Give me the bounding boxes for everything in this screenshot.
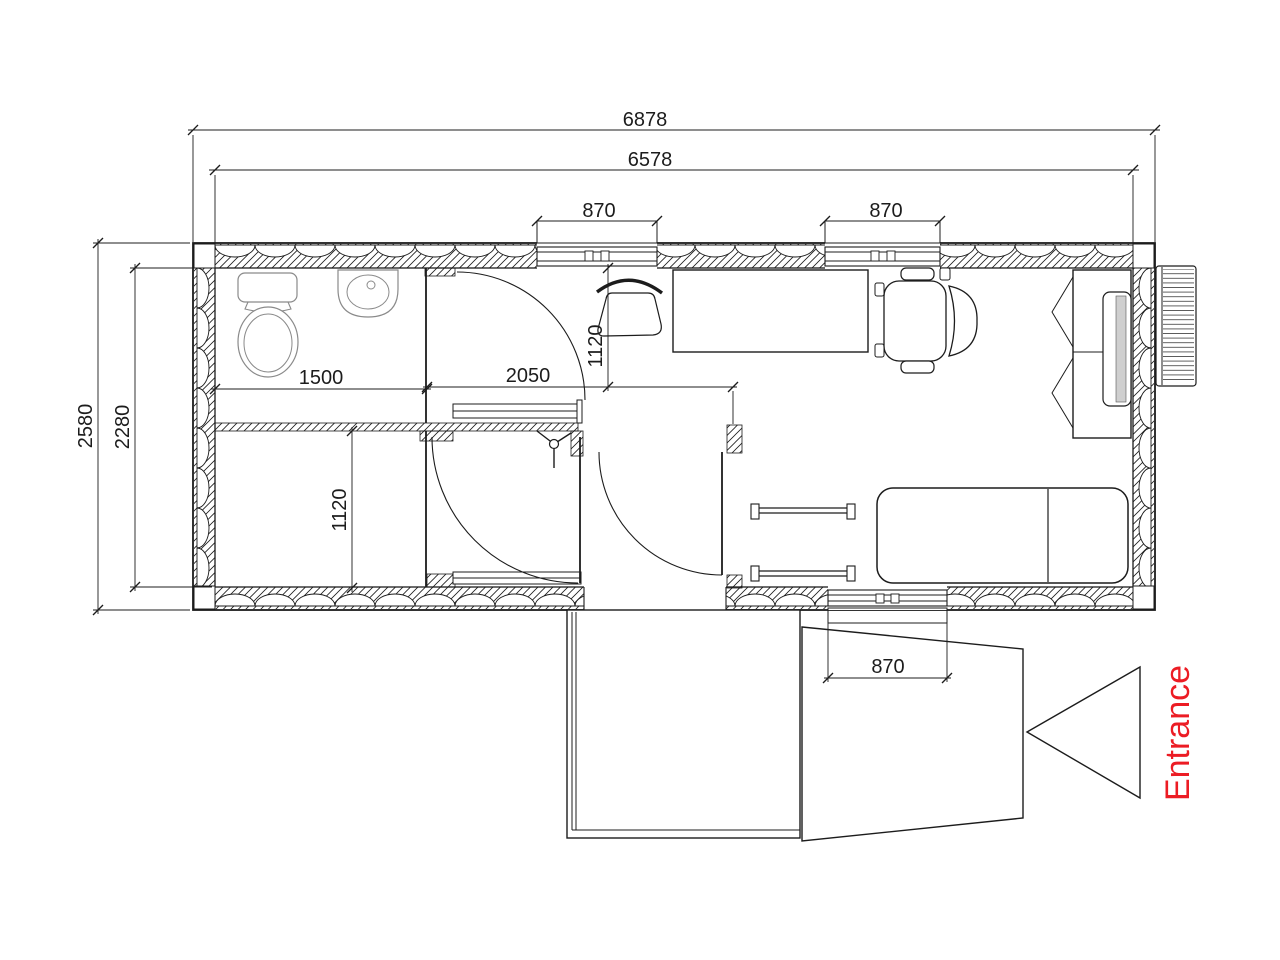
entrance-arrow-icon bbox=[1027, 667, 1140, 798]
corner-casting bbox=[1133, 244, 1154, 268]
ac-panel bbox=[1116, 296, 1126, 402]
dim-top-window-left: 870 bbox=[582, 200, 615, 222]
dim-overall-width: 6878 bbox=[623, 109, 668, 131]
dim-top-window-right: 870 bbox=[869, 200, 902, 222]
dim-hall-width: 2050 bbox=[506, 365, 551, 387]
ac-outdoor-unit bbox=[1156, 266, 1196, 386]
wall-pier bbox=[427, 574, 455, 587]
window-top-right bbox=[825, 221, 940, 269]
floor-plan-canvas: Entrance bbox=[0, 0, 1280, 960]
interior-partitions bbox=[215, 268, 742, 588]
porch-deck bbox=[567, 610, 800, 838]
corner-casting bbox=[194, 244, 215, 268]
ac-indoor-unit bbox=[1103, 292, 1131, 406]
side-table bbox=[751, 504, 855, 581]
sink bbox=[338, 270, 398, 317]
dim-bottom-window: 870 bbox=[871, 656, 904, 678]
storage-room-door bbox=[432, 437, 580, 583]
entrance-label: Entrance bbox=[1159, 665, 1197, 801]
dim-office-bay-depth: 1120 bbox=[585, 324, 607, 367]
ceiling-fan-icon bbox=[537, 431, 571, 468]
bed bbox=[877, 488, 1128, 583]
partition-band bbox=[215, 423, 578, 431]
desk bbox=[673, 270, 868, 352]
dim-inner-width: 6578 bbox=[628, 149, 673, 171]
bathroom-door bbox=[457, 272, 585, 423]
wall-pier bbox=[727, 425, 742, 453]
window-top-left bbox=[537, 221, 657, 269]
entry-door-opening bbox=[584, 585, 726, 612]
wall-pier bbox=[425, 268, 455, 276]
toilet bbox=[238, 273, 298, 377]
wall-pier bbox=[571, 431, 583, 456]
wave-top bbox=[215, 245, 1135, 257]
entrance-ramp bbox=[802, 627, 1023, 841]
floor-plan-page: Entrance bbox=[0, 0, 1280, 960]
dim-overall-depth: 2580 bbox=[75, 404, 97, 449]
office-chair bbox=[875, 268, 977, 373]
corner-casting bbox=[1133, 586, 1154, 609]
wall-pier bbox=[420, 431, 453, 441]
corner-casting bbox=[194, 586, 215, 609]
dim-bathroom-width: 1500 bbox=[299, 367, 344, 389]
dim-inner-depth: 2280 bbox=[112, 405, 134, 450]
bedroom-door bbox=[599, 452, 722, 575]
dim-storage-depth: 1120 bbox=[329, 488, 351, 531]
window-bottom bbox=[828, 586, 947, 623]
wall-pier bbox=[727, 575, 742, 588]
